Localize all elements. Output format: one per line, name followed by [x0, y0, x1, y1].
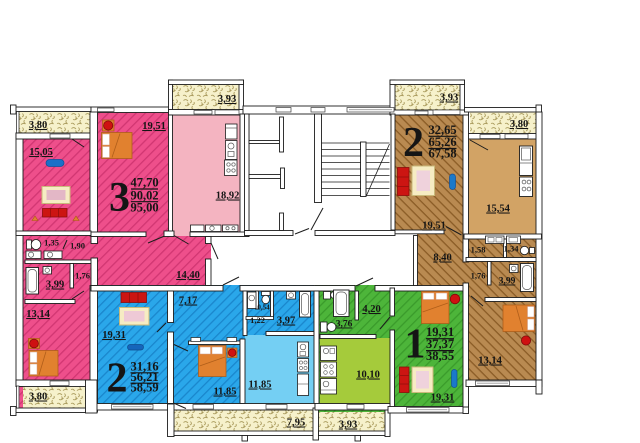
svg-text:1,76: 1,76 [471, 271, 486, 281]
svg-text:1,35: 1,35 [44, 238, 59, 248]
svg-text:19,31: 19,31 [431, 393, 455, 404]
svg-text:4,20: 4,20 [362, 304, 380, 315]
svg-text:3,99: 3,99 [46, 280, 64, 291]
svg-text:2: 2 [107, 356, 128, 402]
svg-text:8,40: 8,40 [433, 253, 451, 264]
svg-text:3: 3 [109, 175, 130, 221]
svg-text:1,76: 1,76 [75, 271, 90, 281]
svg-text:7,95: 7,95 [287, 418, 305, 429]
svg-text:3,76: 3,76 [336, 320, 353, 330]
svg-text:3,80: 3,80 [29, 120, 47, 131]
svg-text:19,51: 19,51 [422, 221, 446, 232]
svg-text:3,99: 3,99 [499, 277, 516, 287]
svg-text:2: 2 [403, 120, 424, 166]
svg-text:3,80: 3,80 [510, 119, 528, 130]
svg-text:19,31: 19,31 [102, 330, 126, 341]
svg-text:1,22: 1,22 [250, 315, 265, 325]
svg-text:11,85: 11,85 [213, 387, 236, 398]
svg-text:0,54: 0,54 [257, 304, 270, 312]
svg-text:18,92: 18,92 [216, 191, 240, 202]
svg-text:47,70: 47,70 [130, 176, 158, 190]
svg-text:3,93: 3,93 [440, 93, 458, 104]
svg-text:3,97: 3,97 [277, 316, 295, 327]
svg-text:1,90: 1,90 [70, 241, 85, 251]
svg-text:1,34: 1,34 [504, 244, 520, 254]
svg-text:3,80: 3,80 [29, 392, 47, 403]
svg-text:11,85: 11,85 [248, 380, 271, 391]
svg-text:13,14: 13,14 [26, 309, 50, 320]
svg-text:19,51: 19,51 [142, 121, 166, 132]
svg-text:95,00: 95,00 [130, 201, 158, 215]
svg-text:3,93: 3,93 [218, 94, 236, 105]
svg-text:15,05: 15,05 [29, 147, 53, 158]
svg-text:1: 1 [405, 322, 426, 368]
svg-text:15,54: 15,54 [486, 204, 510, 215]
svg-text:3,93: 3,93 [339, 420, 357, 431]
svg-text:1,58: 1,58 [471, 245, 486, 255]
svg-text:13,14: 13,14 [478, 356, 502, 367]
svg-text:14,40: 14,40 [176, 270, 200, 281]
svg-text:10,10: 10,10 [356, 370, 380, 381]
svg-text:7,17: 7,17 [179, 296, 197, 307]
